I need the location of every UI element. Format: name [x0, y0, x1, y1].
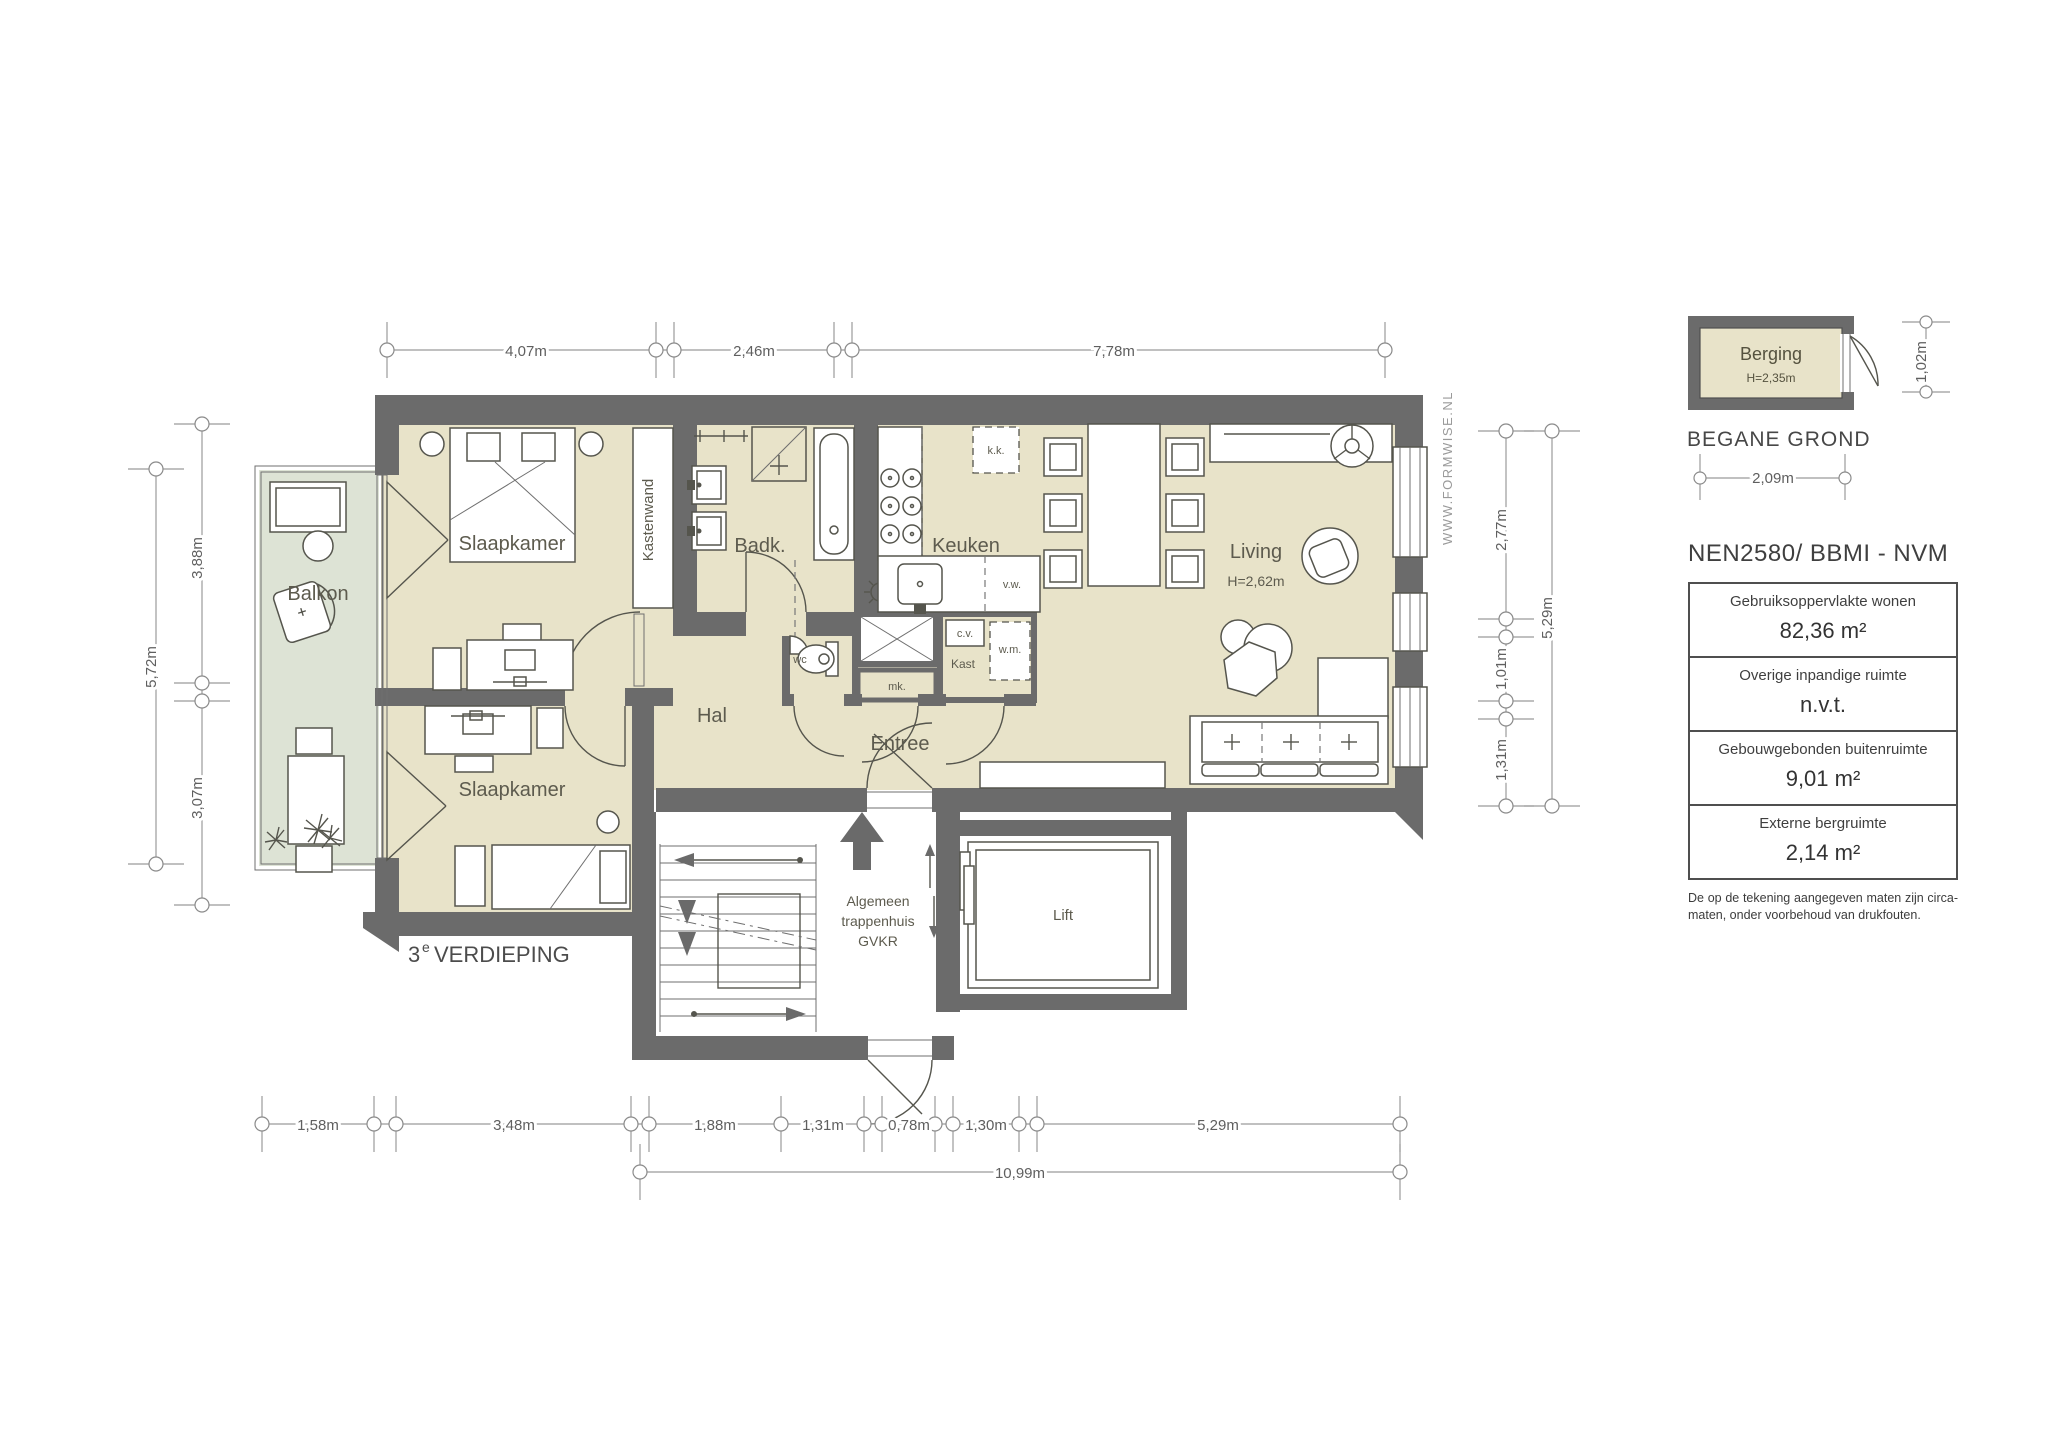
area-row-buitenruimte: Gebouwgebonden buitenruimte 9,01 m² [1690, 732, 1956, 806]
label-wm: w.m. [998, 644, 1022, 656]
dim-left-0: 3,88m [189, 537, 206, 579]
room-label-living: Living [1230, 541, 1282, 563]
area-value: 2,14 m² [1696, 840, 1950, 866]
watermark-text: WWW.FORMWISE.NL [1440, 391, 1455, 545]
floor-label-text: VERDIEPING [434, 942, 570, 967]
label-trappenhuis-3: GVKR [858, 933, 898, 949]
room-label-keuken: Keuken [932, 535, 1000, 557]
living-windows [1393, 447, 1427, 767]
area-row-wonen: Gebruiksoppervlakte wonen 82,36 m² [1690, 584, 1956, 658]
room-label-hal: Hal [697, 705, 727, 727]
label-mk: mk. [888, 681, 906, 693]
berging-caption: BEGANE GROND [1687, 428, 1871, 451]
area-value: 9,01 m² [1696, 766, 1950, 792]
area-label: Externe bergruimte [1696, 815, 1950, 832]
label-trappenhuis-2: trappenhuis [841, 913, 914, 929]
label-vw: v.w. [1003, 579, 1021, 591]
room-label-badkamer: Badk. [734, 535, 785, 557]
floor-label-number: 3 [408, 942, 420, 967]
label-lift: Lift [1053, 907, 1074, 924]
dim-right-1: 1,01m [1493, 648, 1510, 690]
area-label: Gebouwgebonden buitenruimte [1696, 741, 1950, 758]
dim-bottom-2: 1,88m [694, 1117, 736, 1134]
area-value: n.v.t. [1696, 692, 1950, 718]
floor-label-sup: e [422, 939, 430, 955]
area-row-inpandig: Overige inpandige ruimte n.v.t. [1690, 658, 1956, 732]
area-value: 82,36 m² [1696, 618, 1950, 644]
berging-width-dim: 2,09m [1752, 470, 1794, 487]
berging-miniplan: Berging H=2,35m 1,02m BEGANE GROND 2,09m [1680, 300, 1980, 500]
label-kastenwand: Kastenwand [640, 479, 657, 562]
dim-right-3: 5,29m [1539, 597, 1556, 639]
dim-bottom-6: 5,29m [1197, 1117, 1239, 1134]
dim-bottom-1: 3,48m [493, 1117, 535, 1134]
room-label-slaapkamer-1: Slaapkamer [459, 533, 566, 555]
dim-right-0: 2,77m [1493, 509, 1510, 551]
area-label: Gebruiksoppervlakte wonen [1696, 593, 1950, 610]
dim-bottom-4: 0,78m [888, 1117, 930, 1134]
dim-bottom-3: 1,31m [802, 1117, 844, 1134]
floorplan-page: Balkon Slaapkamer Slaapkamer Kastenwand … [0, 0, 2048, 1448]
berging-height: H=2,35m [1746, 371, 1795, 385]
nen-legend: NEN2580/ BBMI - NVM Gebruiksoppervlakte … [1688, 540, 1958, 924]
dim-top-0: 4,07m [505, 343, 547, 360]
room-label-balkon: Balkon [287, 583, 348, 605]
label-wc: wc [792, 654, 807, 666]
room-label-slaapkamer-2: Slaapkamer [459, 779, 566, 801]
norm-title: NEN2580/ BBMI - NVM [1688, 540, 1958, 568]
dim-left-2: 3,07m [189, 777, 206, 819]
label-kast: Kast [951, 657, 976, 671]
area-row-bergruimte: Externe bergruimte 2,14 m² [1690, 806, 1956, 878]
label-cv: c.v. [957, 628, 973, 640]
berging-depth-dim: 1,02m [1913, 341, 1930, 383]
label-living-height: H=2,62m [1227, 573, 1284, 589]
floor-label: 3 e VERDIEPING [408, 939, 570, 967]
dim-top-2: 7,78m [1093, 343, 1135, 360]
dim-bottom-total: 10,99m [995, 1165, 1045, 1182]
room-label-entree: Entree [871, 733, 930, 755]
area-table: Gebruiksoppervlakte wonen 82,36 m² Overi… [1688, 582, 1958, 880]
disclaimer-text: De op de tekening aangegeven maten zijn … [1688, 890, 1958, 924]
berging-name: Berging [1740, 344, 1802, 364]
label-trappenhuis-1: Algemeen [846, 893, 909, 909]
area-label: Overige inpandige ruimte [1696, 667, 1950, 684]
dim-top-1: 2,46m [733, 343, 775, 360]
dim-left-1: 5,72m [143, 646, 160, 688]
label-kk: k.k. [987, 445, 1004, 457]
dim-right-2: 1,31m [1493, 739, 1510, 781]
dim-bottom-0: 1,58m [297, 1117, 339, 1134]
dim-bottom-5: 1,30m [965, 1117, 1007, 1134]
